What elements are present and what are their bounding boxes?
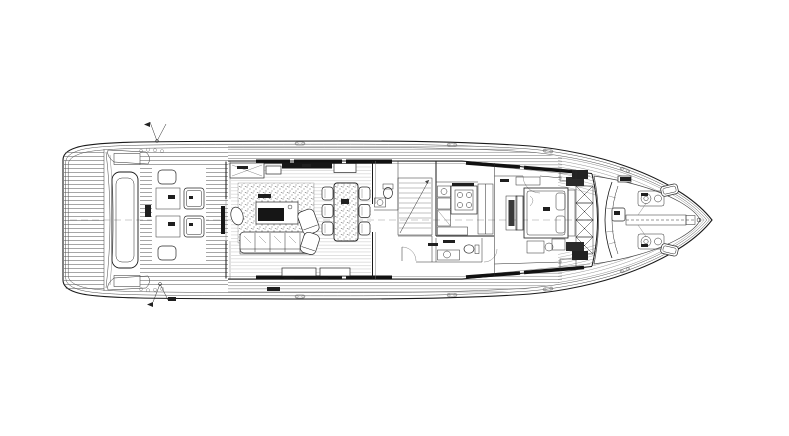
cockpit-stool bbox=[158, 170, 176, 184]
cockpit-stool bbox=[158, 246, 176, 260]
micro-label bbox=[428, 243, 438, 246]
micro-label bbox=[237, 166, 248, 169]
micro-label bbox=[145, 205, 151, 217]
micro-label bbox=[302, 164, 311, 167]
coffee-table bbox=[256, 202, 298, 224]
micro-label bbox=[641, 193, 648, 196]
toilet bbox=[464, 245, 474, 253]
micro-label bbox=[168, 195, 175, 199]
micro-label bbox=[443, 240, 455, 243]
micro-label bbox=[620, 177, 631, 181]
aft-cockpit bbox=[140, 152, 228, 288]
sliding-door bbox=[221, 206, 225, 234]
micro-label bbox=[189, 196, 193, 199]
micro-label bbox=[543, 207, 550, 211]
micro-label bbox=[168, 297, 176, 301]
micro-label bbox=[452, 183, 474, 186]
dining-area bbox=[322, 183, 370, 241]
nightstand bbox=[566, 242, 584, 251]
micro-label bbox=[189, 223, 193, 226]
flag-staff-symbol-top bbox=[144, 122, 166, 143]
cooktop bbox=[451, 186, 477, 214]
yacht-deck-plan-drawing: Motor yacht main deck arrangement drawin… bbox=[0, 0, 789, 436]
micro-label bbox=[500, 179, 509, 182]
micro-label bbox=[341, 199, 349, 204]
micro-label bbox=[168, 222, 175, 226]
plan-canvas: Motor yacht main deck arrangement drawin… bbox=[0, 0, 789, 436]
micro-label bbox=[267, 287, 280, 291]
micro-label bbox=[614, 211, 620, 215]
dining-table bbox=[334, 183, 358, 241]
micro-label bbox=[258, 194, 271, 198]
micro-label bbox=[641, 244, 648, 247]
